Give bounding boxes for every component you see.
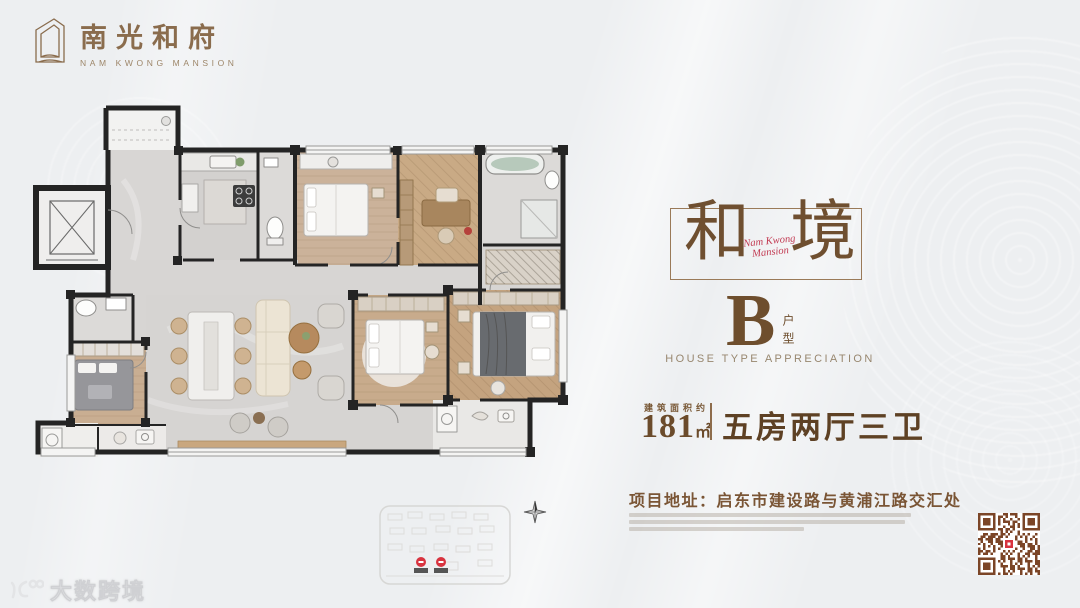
brand-name-cn: 南光和府 [80, 16, 238, 55]
disclaimer-fine-print [629, 513, 911, 534]
watermark: 大数跨境 [8, 574, 146, 606]
title-char-he: 和 [684, 200, 750, 266]
qr-code [978, 513, 1040, 575]
brand-name-en: NAM KWONG MANSION [80, 58, 238, 68]
map-pin-icon [414, 557, 448, 573]
house-type-letter: B [726, 284, 775, 358]
project-address: 项目地址：启东市建设路与黄浦江路交汇处 [629, 487, 962, 511]
divider-line [710, 403, 712, 440]
watermark-logo-icon [8, 577, 44, 603]
title-char-jing: 境 [790, 200, 856, 266]
watermark-text: 大数跨境 [50, 574, 146, 606]
compass-icon [523, 500, 547, 524]
brand-logo: 南光和府 NAM KWONG MANSION [28, 16, 238, 68]
house-type-label: 户型 [780, 314, 797, 350]
arch-door-icon [28, 16, 70, 68]
house-type-subtitle: HOUSE TYPE APPRECIATION [650, 353, 890, 365]
layout-text: 五房两厅三卫 [722, 402, 926, 447]
elevator [36, 188, 108, 267]
site-plan-map [378, 504, 526, 602]
area-value: 181㎡ [641, 408, 712, 446]
floor-plan [28, 100, 598, 508]
